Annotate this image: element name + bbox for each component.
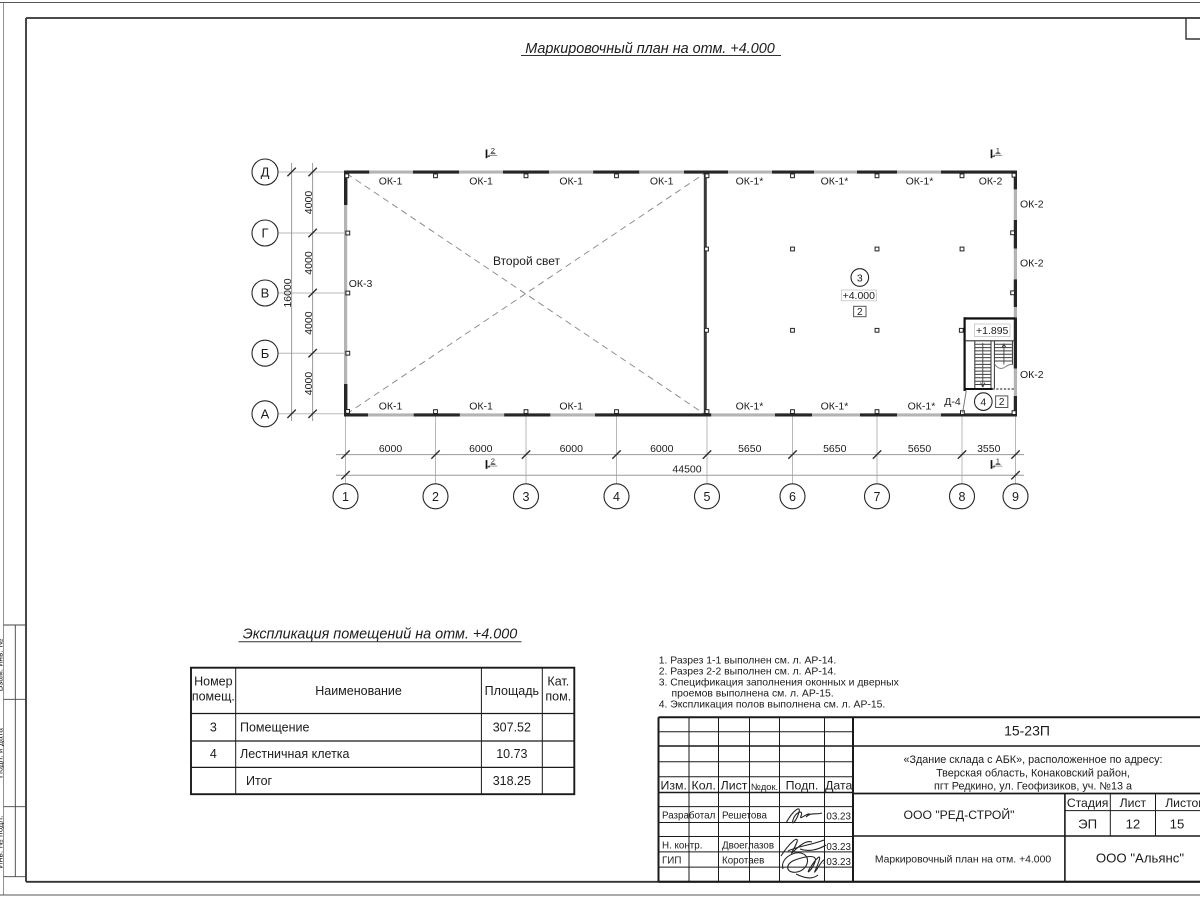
- svg-text:Д-4: Д-4: [944, 396, 961, 408]
- svg-text:Лестничная клетка: Лестничная клетка: [240, 747, 350, 761]
- svg-text:Дата: Дата: [825, 779, 852, 793]
- svg-text:Кол.: Кол.: [692, 779, 716, 793]
- svg-text:12: 12: [1126, 817, 1141, 832]
- svg-text:4000: 4000: [303, 311, 315, 335]
- svg-text:Наименование: Наименование: [315, 684, 402, 698]
- svg-text:ОК-1: ОК-1: [379, 401, 403, 413]
- svg-text:+4.000: +4.000: [843, 290, 876, 302]
- svg-text:Площадь: Площадь: [485, 684, 539, 698]
- svg-text:Лист: Лист: [721, 779, 748, 793]
- svg-text:2: 2: [999, 397, 1005, 408]
- svg-text:Тверская область, Конаковский: Тверская область, Конаковский район,: [936, 767, 1130, 779]
- svg-text:ООО "РЕД-СТРОЙ": ООО "РЕД-СТРОЙ": [904, 807, 1015, 822]
- svg-text:2. Разрез 2-2 выполнен см. л.: 2. Разрез 2-2 выполнен см. л. АР-14.: [659, 666, 837, 677]
- svg-text:3550: 3550: [977, 443, 1001, 455]
- svg-text:2: 2: [432, 490, 439, 504]
- svg-text:Изм.: Изм.: [661, 779, 687, 793]
- svg-text:6000: 6000: [379, 443, 403, 455]
- svg-text:7: 7: [874, 490, 881, 504]
- svg-text:2: 2: [857, 307, 863, 318]
- svg-text:5650: 5650: [823, 443, 847, 455]
- svg-text:6000: 6000: [560, 443, 584, 455]
- svg-text:4: 4: [980, 397, 986, 409]
- svg-text:03.23: 03.23: [826, 842, 851, 853]
- svg-text:Коротаев: Коротаев: [722, 856, 764, 867]
- svg-text:Инв. № подл.: Инв. № подл.: [0, 816, 5, 869]
- svg-text:Взам. инв. №: Взам. инв. №: [0, 639, 5, 692]
- svg-text:ОК-2: ОК-2: [1020, 258, 1044, 270]
- svg-text:Маркировочный план на отм. +4.: Маркировочный план на отм. +4.000: [875, 854, 1052, 865]
- svg-text:Лист: Лист: [1120, 796, 1147, 810]
- svg-text:15-23П: 15-23П: [1004, 723, 1050, 739]
- svg-text:4000: 4000: [303, 372, 315, 396]
- svg-text:Маркировочный план на отм. +4.: Маркировочный план на отм. +4.000: [525, 41, 774, 57]
- svg-text:3: 3: [210, 721, 217, 735]
- svg-text:ОК-2: ОК-2: [979, 176, 1003, 188]
- svg-text:ОК-1*: ОК-1*: [821, 176, 849, 188]
- svg-text:Кат.: Кат.: [547, 675, 569, 689]
- svg-text:Номер: Номер: [194, 675, 233, 689]
- svg-text:ООО "Альянс": ООО "Альянс": [1096, 851, 1184, 866]
- svg-text:8: 8: [959, 490, 966, 504]
- svg-text:Помещение: Помещение: [240, 721, 309, 735]
- svg-text:ОК-2: ОК-2: [1020, 199, 1044, 211]
- svg-text:ОК-2: ОК-2: [1020, 369, 1044, 381]
- svg-text:ОК-1*: ОК-1*: [906, 176, 934, 188]
- svg-text:А: А: [261, 406, 270, 421]
- svg-text:Экспликация помещений на отм.: Экспликация помещений на отм. +4.000: [243, 627, 518, 643]
- svg-text:Решетова: Решетова: [722, 811, 767, 822]
- svg-text:10.73: 10.73: [496, 747, 527, 761]
- svg-text:5: 5: [704, 490, 711, 504]
- svg-text:ОК-1: ОК-1: [469, 176, 493, 188]
- svg-text:44500: 44500: [672, 464, 701, 476]
- svg-text:Второй свет: Второй свет: [493, 254, 561, 268]
- svg-text:Подп.: Подп.: [786, 779, 819, 793]
- svg-text:3: 3: [857, 272, 863, 284]
- svg-text:ОК-1: ОК-1: [559, 176, 583, 188]
- svg-text:№док.: №док.: [751, 782, 778, 792]
- svg-text:Двоеглазов: Двоеглазов: [722, 840, 774, 851]
- svg-text:4: 4: [613, 490, 620, 504]
- svg-text:5650: 5650: [738, 443, 762, 455]
- svg-text:ОК-1: ОК-1: [559, 401, 583, 413]
- svg-text:ОК-1: ОК-1: [650, 176, 674, 188]
- svg-text:ЭП: ЭП: [1078, 817, 1097, 832]
- svg-text:4000: 4000: [303, 251, 315, 275]
- svg-text:16000: 16000: [282, 278, 294, 307]
- svg-text:«Здание склада с АБК», располо: «Здание склада с АБК», расположенное по …: [903, 754, 1162, 766]
- svg-text:помещ.: помещ.: [192, 690, 235, 704]
- svg-text:ОК-1*: ОК-1*: [821, 401, 849, 413]
- svg-text:ОК-1: ОК-1: [379, 176, 403, 188]
- svg-text:Подп. и дата: Подп. и дата: [0, 728, 5, 778]
- svg-text:В: В: [261, 286, 270, 301]
- svg-text:Н. контр.: Н. контр.: [662, 840, 702, 851]
- svg-text:1. Разрез 1-1 выполнен см. л.: 1. Разрез 1-1 выполнен см. л. АР-14.: [659, 655, 837, 666]
- svg-text:4: 4: [210, 747, 217, 761]
- svg-text:5650: 5650: [908, 443, 932, 455]
- svg-text:ГИП: ГИП: [662, 856, 681, 867]
- svg-text:+1.895: +1.895: [976, 325, 1009, 337]
- svg-text:6000: 6000: [650, 443, 674, 455]
- svg-text:318.25: 318.25: [493, 774, 531, 788]
- svg-text:ОК-1: ОК-1: [469, 401, 493, 413]
- svg-text:307.52: 307.52: [493, 721, 531, 735]
- svg-text:пом.: пом.: [545, 690, 571, 704]
- svg-text:4000: 4000: [303, 191, 315, 215]
- svg-text:Г: Г: [261, 226, 268, 241]
- svg-text:3. Спецификация заполнения око: 3. Спецификация заполнения оконных и две…: [659, 677, 900, 689]
- svg-text:Итог: Итог: [246, 774, 273, 788]
- svg-text:Б: Б: [261, 346, 270, 361]
- svg-text:Листов: Листов: [1165, 796, 1200, 810]
- svg-text:ОК-1*: ОК-1*: [736, 176, 764, 188]
- svg-text:ОК-1*: ОК-1*: [908, 401, 936, 413]
- svg-text:Стадия: Стадия: [1067, 796, 1109, 810]
- svg-text:1: 1: [342, 490, 349, 504]
- svg-text:Разработал: Разработал: [662, 811, 716, 822]
- svg-text:3: 3: [523, 490, 530, 504]
- svg-text:4. Экспликация полов выполнена: 4. Экспликация полов выполнена см. л. АР…: [659, 700, 886, 711]
- svg-text:6000: 6000: [469, 443, 493, 455]
- svg-text:6: 6: [789, 490, 796, 504]
- svg-text:ОК-1*: ОК-1*: [736, 401, 764, 413]
- svg-text:15: 15: [1170, 817, 1185, 832]
- svg-text:ОК-3: ОК-3: [349, 278, 373, 290]
- svg-text:пгт Редкино, ул. Геофизиков, у: пгт Редкино, ул. Геофизиков, уч. №13 а: [934, 781, 1132, 793]
- svg-text:проемов выполнена см. л. АР-15: проемов выполнена см. л. АР-15.: [672, 689, 834, 700]
- svg-text:Д: Д: [261, 165, 270, 180]
- svg-text:03.23: 03.23: [826, 857, 851, 868]
- svg-text:03.23: 03.23: [826, 812, 851, 823]
- svg-text:9: 9: [1012, 490, 1019, 504]
